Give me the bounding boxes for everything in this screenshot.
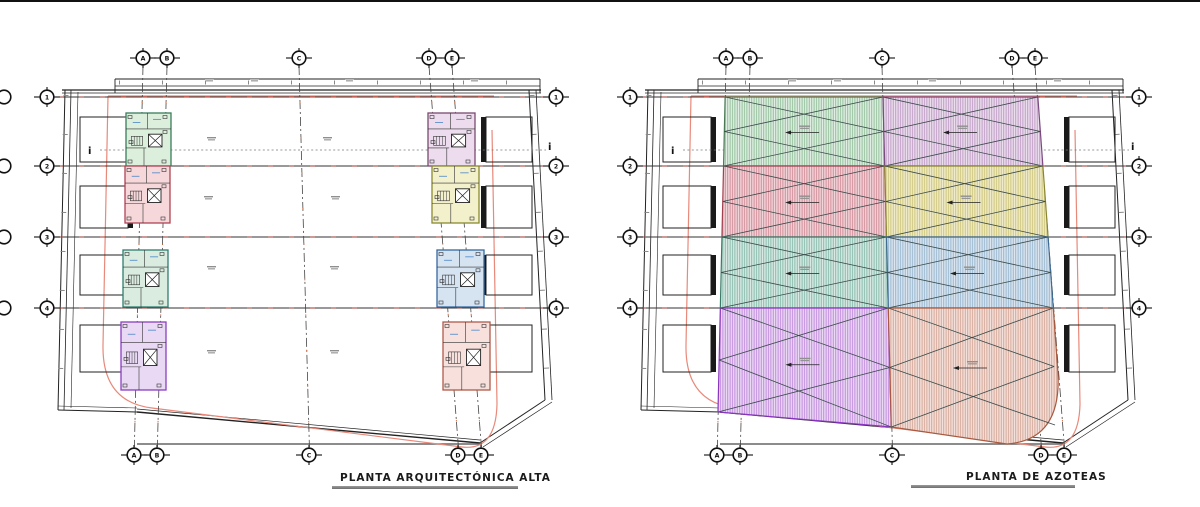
axis-bubble-3: 3	[617, 227, 643, 247]
level-annotation	[330, 266, 339, 269]
svg-text:1: 1	[628, 94, 632, 101]
svg-text:D: D	[426, 55, 431, 62]
svg-text:i: i	[671, 146, 674, 157]
svg-text:3: 3	[628, 234, 632, 241]
axis-bubble-B: B	[727, 445, 753, 465]
axis-bubble-2: 2	[34, 156, 60, 176]
axis-bubble-C: C	[879, 445, 905, 465]
axis-bubble-D: D	[416, 48, 442, 68]
svg-text:2: 2	[45, 163, 49, 170]
level-annotation	[331, 196, 340, 199]
svg-text:i: i	[1131, 142, 1134, 153]
unit-block-rose	[125, 166, 170, 223]
svg-text:3: 3	[1137, 234, 1141, 241]
level-annotation	[330, 350, 339, 353]
clipped-axis-bubble	[0, 90, 11, 104]
svg-text:i: i	[88, 146, 91, 157]
svg-text:D: D	[1009, 55, 1014, 62]
axis-bubble-A: A	[704, 445, 730, 465]
drawing-sheet: iiAABBCCDDEE11223344iiAABBCCDDEE11223344…	[0, 0, 1200, 507]
plans-canvas: iiAABBCCDDEE11223344iiAABBCCDDEE11223344	[0, 0, 1200, 507]
roof-region-rose	[722, 166, 887, 237]
unit-block-salmon	[443, 322, 490, 390]
svg-text:C: C	[307, 452, 312, 459]
svg-text:2: 2	[1137, 163, 1141, 170]
floor-plan-title-underline	[332, 486, 518, 489]
roof-region-yellow	[885, 166, 1048, 237]
axis-bubble-1: 1	[617, 87, 643, 107]
svg-text:3: 3	[554, 234, 558, 241]
axis-bubble-E: E	[1051, 445, 1077, 465]
axis-bubble-2: 2	[543, 156, 569, 176]
axis-bubble-A: A	[713, 48, 739, 68]
axis-bubble-E: E	[439, 48, 465, 68]
axis-bubble-B: B	[154, 48, 180, 68]
axis-bubble-D: D	[999, 48, 1025, 68]
unit-block-blue	[437, 250, 484, 307]
svg-text:1: 1	[1137, 94, 1141, 101]
apartment-units	[121, 113, 490, 390]
svg-text:1: 1	[45, 94, 49, 101]
svg-text:4: 4	[628, 305, 633, 312]
axis-bubble-E: E	[1022, 48, 1048, 68]
unit-block-green	[126, 113, 171, 166]
svg-text:B: B	[748, 55, 753, 62]
axis-bubble-1: 1	[1126, 87, 1152, 107]
roof-plan-title: PLANTA DE AZOTEAS	[966, 471, 1107, 484]
level-annotation	[204, 196, 213, 199]
svg-text:A: A	[141, 55, 146, 62]
upper-floor-plan: iiAABBCCDDEE11223344	[0, 48, 569, 465]
roof-plan-title-underline	[911, 485, 1075, 488]
axis-bubble-3: 3	[34, 227, 60, 247]
roof-membrane-regions	[718, 97, 1058, 444]
level-annotation	[323, 137, 332, 140]
svg-text:E: E	[479, 452, 483, 459]
clipped-axis-bubble	[0, 159, 11, 173]
axis-bubble-A: A	[121, 445, 147, 465]
svg-text:4: 4	[1137, 305, 1142, 312]
clipped-axis-bubble	[0, 230, 11, 244]
axis-bubble-2: 2	[617, 156, 643, 176]
roof-region-salmon	[888, 308, 1058, 444]
svg-text:E: E	[1033, 55, 1037, 62]
axis-bubble-B: B	[144, 445, 170, 465]
top-dimension-chain	[115, 78, 540, 93]
roof-plan: iiAABBCCDDEE11223344	[617, 48, 1152, 465]
svg-text:B: B	[165, 55, 170, 62]
svg-text:A: A	[724, 55, 729, 62]
roof-region-green	[724, 97, 885, 166]
svg-text:E: E	[1062, 452, 1066, 459]
unit-block-yellow	[432, 166, 479, 223]
svg-text:A: A	[715, 452, 720, 459]
axis-bubble-D: D	[1028, 445, 1054, 465]
svg-text:C: C	[880, 55, 885, 62]
axis-bubble-C: C	[296, 445, 322, 465]
roof-region-blue	[887, 237, 1054, 308]
axis-bubble-A: A	[130, 48, 156, 68]
axis-bubble-E: E	[468, 445, 494, 465]
clipped-axis-bubble	[0, 301, 11, 315]
svg-text:E: E	[450, 55, 454, 62]
axis-bubble-D: D	[445, 445, 471, 465]
svg-text:3: 3	[45, 234, 49, 241]
axis-bubble-B: B	[737, 48, 763, 68]
svg-text:i: i	[548, 142, 551, 153]
axis-bubble-1: 1	[34, 87, 60, 107]
svg-text:D: D	[455, 452, 460, 459]
level-annotation	[207, 137, 216, 140]
level-annotation	[207, 350, 216, 353]
top-dimension-chain	[698, 78, 1123, 93]
svg-text:2: 2	[554, 163, 558, 170]
svg-text:B: B	[155, 452, 160, 459]
roof-region-mauve	[883, 97, 1043, 166]
svg-text:D: D	[1038, 452, 1043, 459]
svg-text:4: 4	[554, 305, 559, 312]
svg-text:C: C	[297, 55, 302, 62]
svg-text:B: B	[738, 452, 743, 459]
axis-bubble-4: 4	[34, 298, 60, 318]
svg-text:A: A	[132, 452, 137, 459]
axis-bubble-4: 4	[617, 298, 643, 318]
axis-bubble-1: 1	[543, 87, 569, 107]
axis-bubble-C: C	[869, 48, 895, 68]
roof-region-teal	[720, 237, 888, 308]
svg-text:2: 2	[628, 163, 632, 170]
axis-bubble-2: 2	[1126, 156, 1152, 176]
axis-bubble-C: C	[286, 48, 312, 68]
floor-plan-title: PLANTA ARQUITECTÓNICA ALTA	[340, 472, 551, 485]
svg-text:C: C	[890, 452, 895, 459]
axis-bubble-3: 3	[543, 227, 569, 247]
unit-block-mauve	[428, 113, 475, 166]
axis-bubble-3: 3	[1126, 227, 1152, 247]
svg-text:1: 1	[554, 94, 558, 101]
svg-text:4: 4	[45, 305, 50, 312]
unit-block-violet	[121, 322, 166, 390]
unit-block-teal	[123, 250, 168, 307]
level-annotation	[207, 266, 216, 269]
roof-region-violet	[718, 308, 891, 427]
